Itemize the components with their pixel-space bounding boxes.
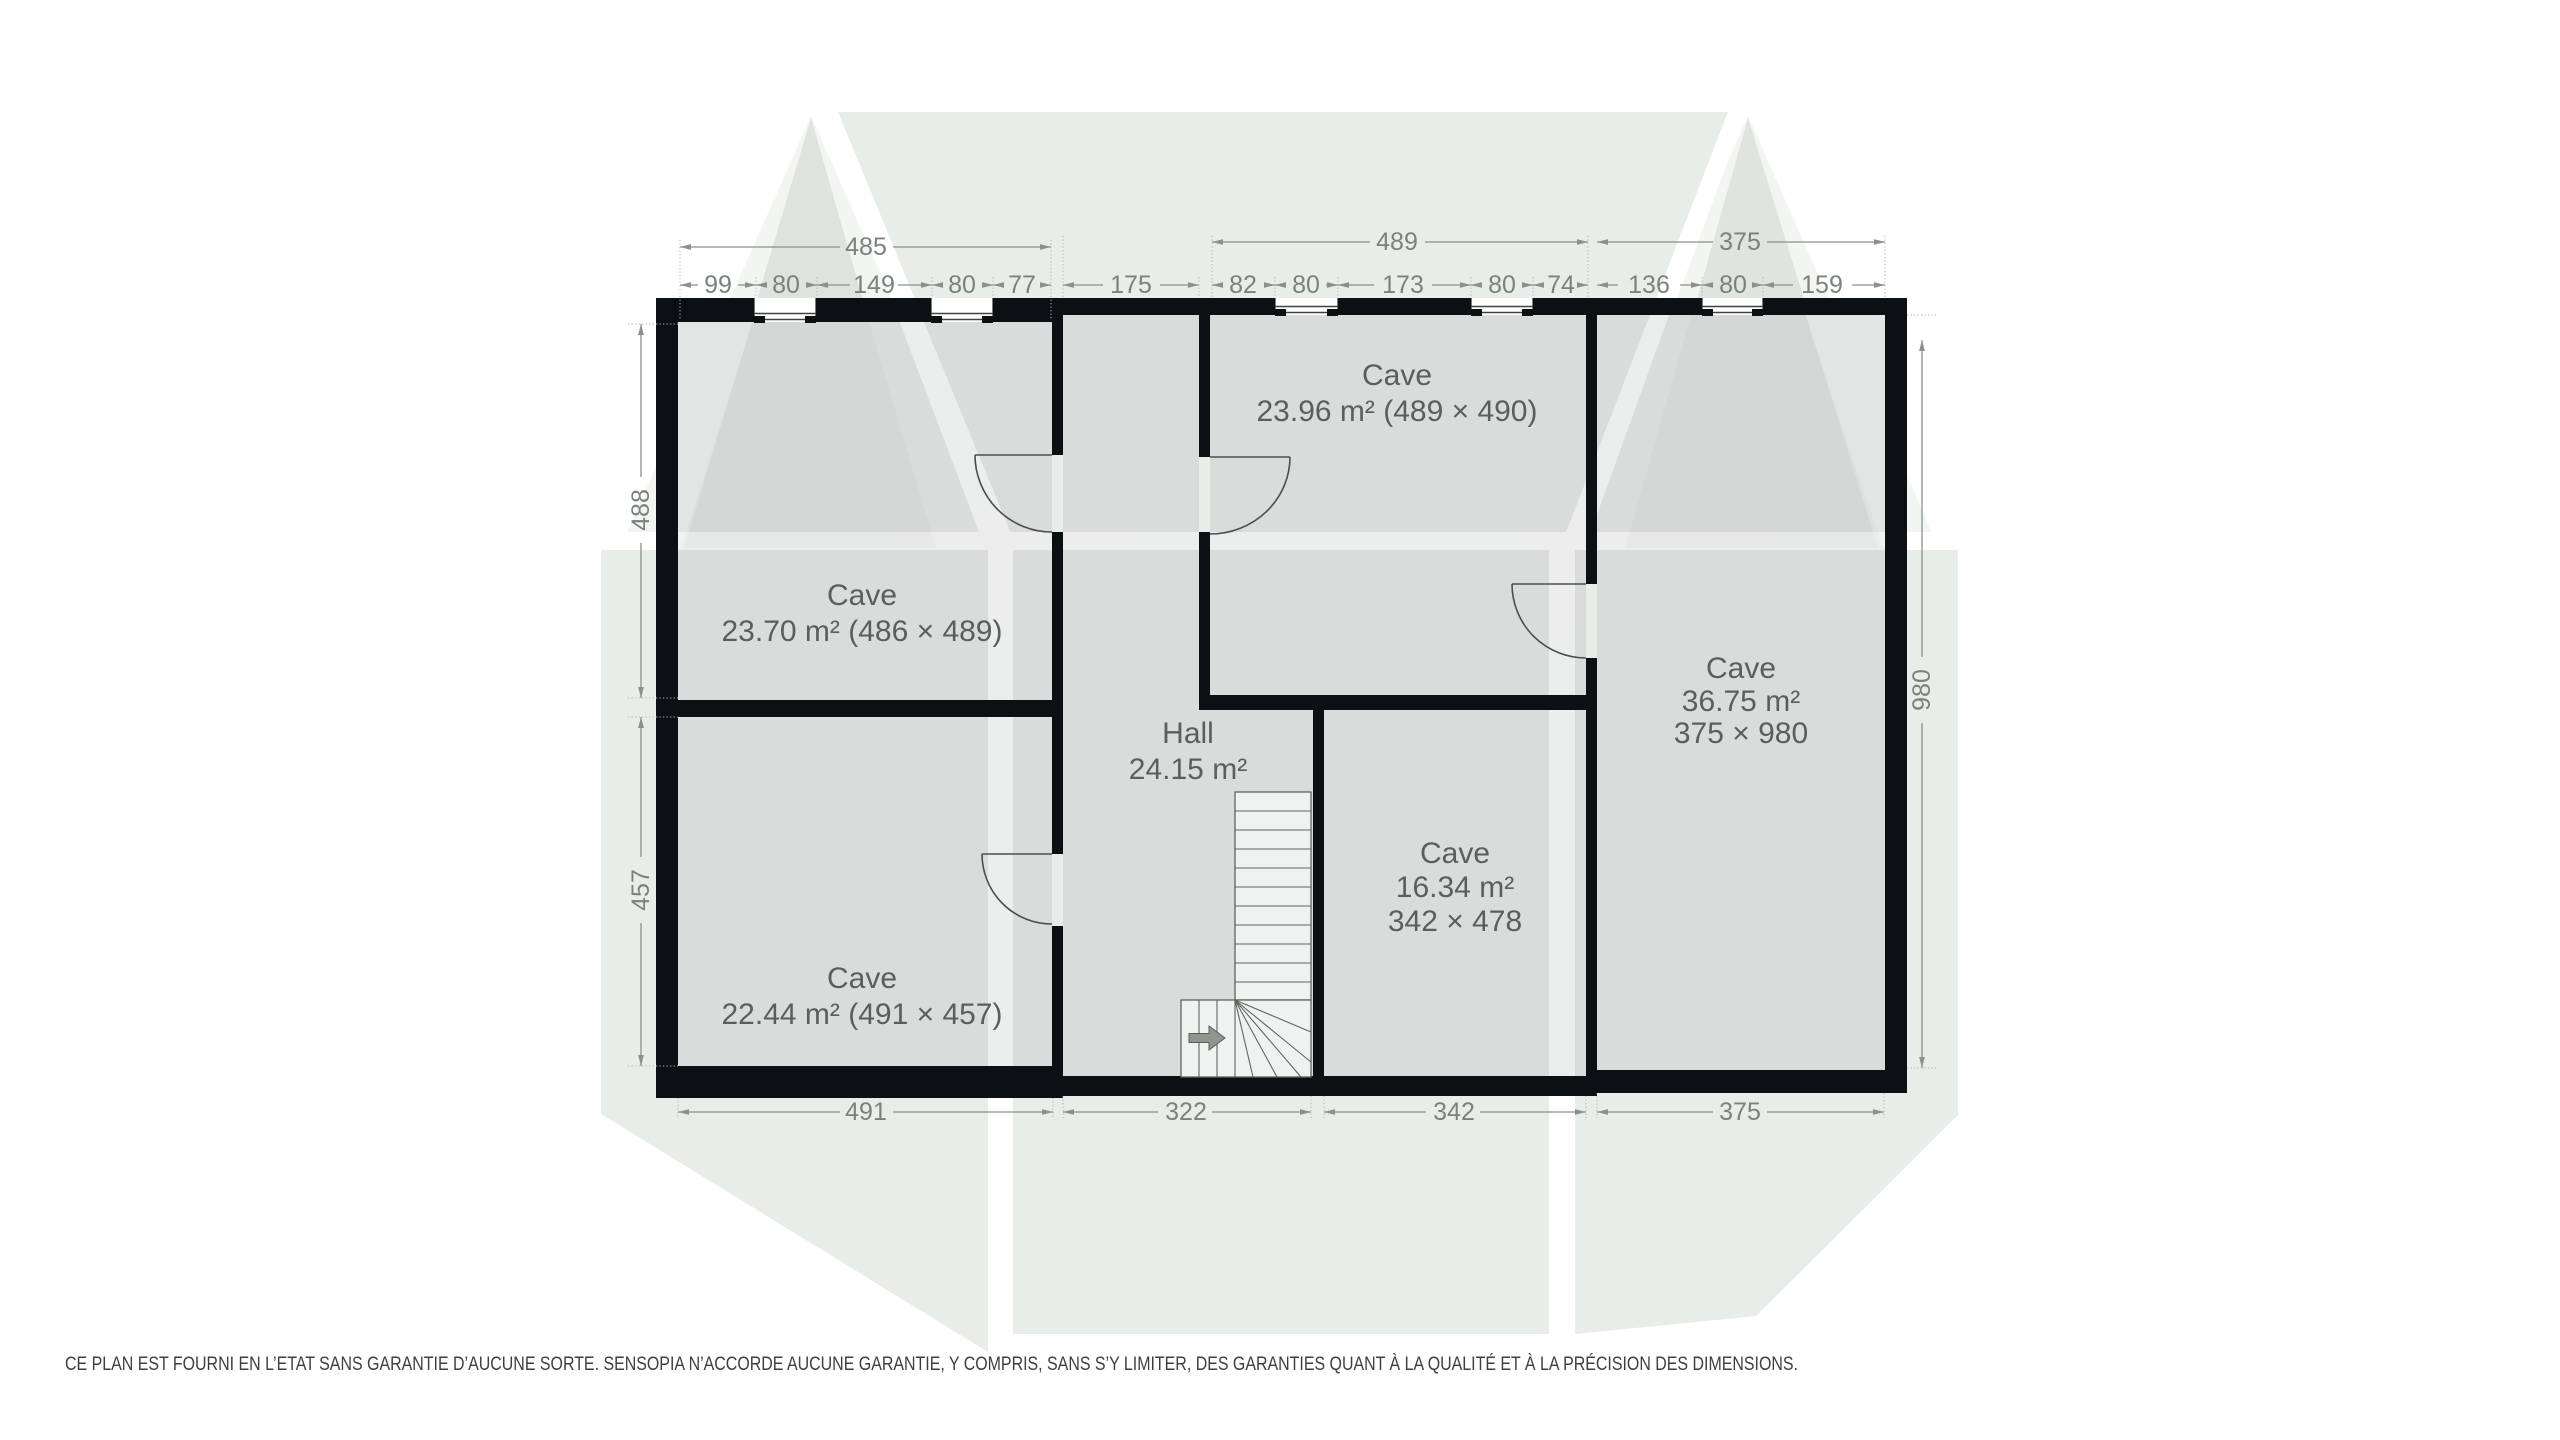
svg-text:CE PLAN EST FOURNI EN L’ETAT S: CE PLAN EST FOURNI EN L’ETAT SANS GARANT… (65, 1352, 1798, 1375)
svg-text:23.70 m² (486 × 489): 23.70 m² (486 × 489) (721, 615, 1002, 648)
svg-text:980: 980 (1908, 669, 1936, 711)
svg-text:Cave: Cave (827, 962, 897, 995)
svg-text:491: 491 (845, 1098, 887, 1126)
svg-text:99: 99 (704, 271, 732, 299)
svg-text:80: 80 (1292, 271, 1320, 299)
svg-text:16.34 m²: 16.34 m² (1396, 871, 1514, 904)
svg-text:489: 489 (1376, 228, 1418, 256)
svg-text:159: 159 (1801, 271, 1843, 299)
svg-text:Hall: Hall (1162, 717, 1214, 750)
svg-text:322: 322 (1165, 1098, 1207, 1126)
svg-text:375: 375 (1719, 228, 1761, 256)
svg-text:457: 457 (627, 869, 655, 911)
svg-text:80: 80 (1719, 271, 1747, 299)
svg-text:80: 80 (772, 271, 800, 299)
svg-text:488: 488 (627, 489, 655, 531)
svg-text:80: 80 (1488, 271, 1516, 299)
svg-text:Cave: Cave (1420, 837, 1490, 870)
svg-text:74: 74 (1547, 271, 1575, 299)
svg-text:173: 173 (1382, 271, 1424, 299)
svg-text:175: 175 (1110, 271, 1152, 299)
svg-text:485: 485 (845, 233, 887, 261)
svg-text:342 × 478: 342 × 478 (1388, 905, 1522, 938)
svg-text:375: 375 (1719, 1098, 1761, 1126)
svg-text:Cave: Cave (827, 579, 897, 612)
svg-text:24.15 m²: 24.15 m² (1129, 753, 1247, 786)
svg-text:23.96 m² (489 × 490): 23.96 m² (489 × 490) (1256, 395, 1537, 428)
svg-text:36.75 m²: 36.75 m² (1682, 685, 1800, 718)
svg-text:82: 82 (1229, 271, 1257, 299)
svg-text:77: 77 (1008, 271, 1036, 299)
svg-text:Cave: Cave (1362, 359, 1432, 392)
svg-text:80: 80 (948, 271, 976, 299)
svg-text:22.44 m² (491 × 457): 22.44 m² (491 × 457) (721, 998, 1002, 1031)
svg-text:375 × 980: 375 × 980 (1674, 717, 1808, 750)
svg-text:Cave: Cave (1706, 652, 1776, 685)
svg-text:136: 136 (1628, 271, 1670, 299)
svg-text:149: 149 (853, 271, 895, 299)
svg-text:342: 342 (1433, 1098, 1475, 1126)
